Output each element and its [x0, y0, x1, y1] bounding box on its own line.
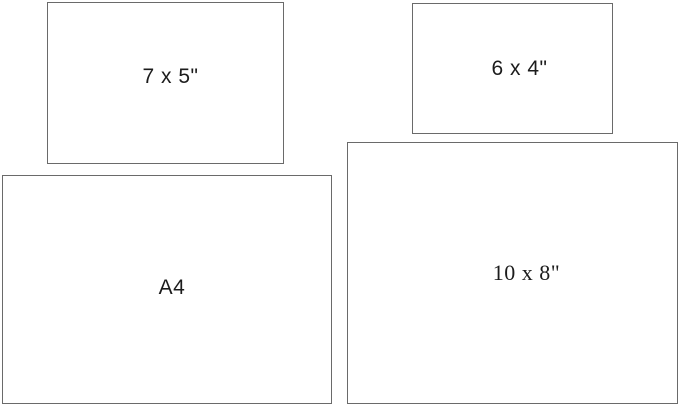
size-box-6x4: 6 x 4" — [412, 3, 613, 134]
size-box-a4: A4 — [2, 175, 332, 404]
print-size-comparison-diagram: 7 x 5" 6 x 4" A4 10 x 8" — [0, 0, 679, 406]
size-label-6x4: 6 x 4" — [492, 57, 548, 81]
size-label-7x5: 7 x 5" — [143, 65, 199, 89]
size-box-10x8: 10 x 8" — [347, 142, 678, 404]
size-label-10x8: 10 x 8" — [493, 260, 560, 286]
size-box-7x5: 7 x 5" — [47, 2, 284, 164]
size-label-a4: A4 — [159, 276, 186, 300]
